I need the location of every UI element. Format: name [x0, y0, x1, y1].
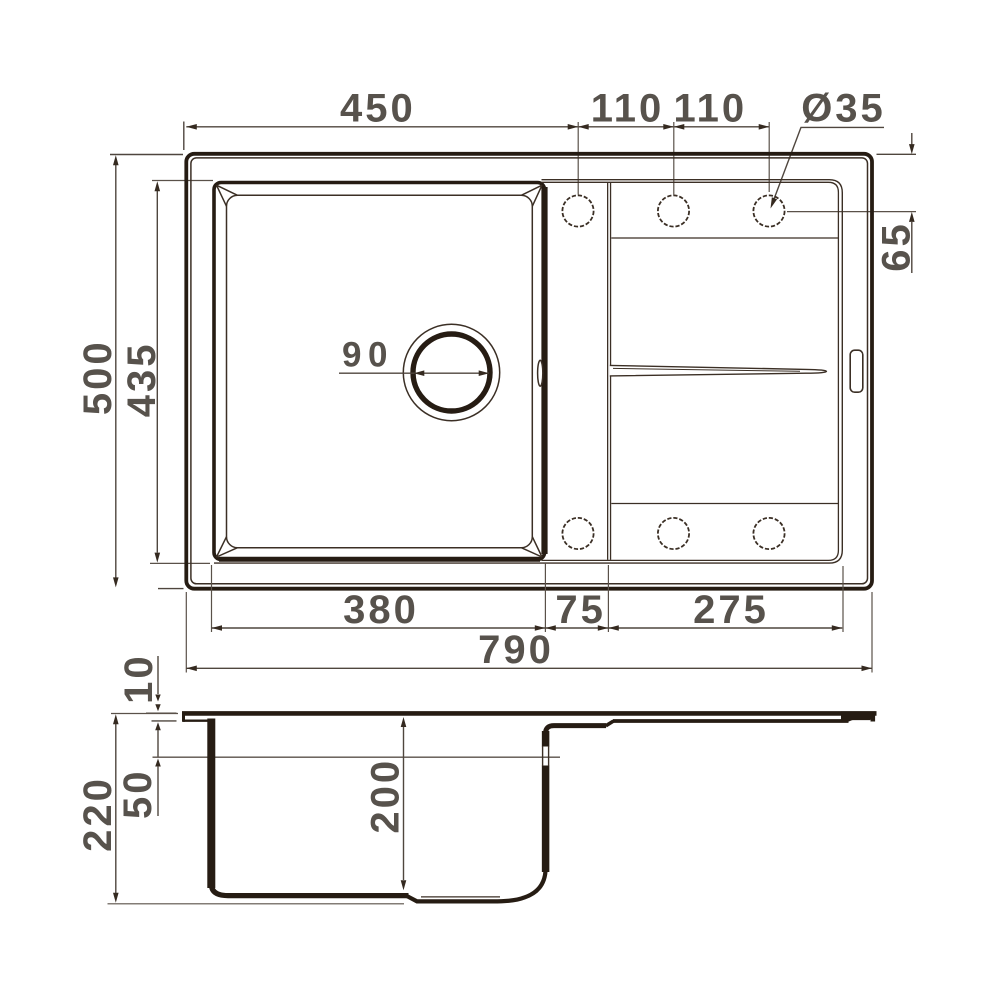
svg-text:65: 65	[875, 221, 919, 272]
svg-text:Ø35: Ø35	[801, 86, 886, 130]
svg-text:110: 110	[591, 86, 665, 130]
svg-text:435: 435	[120, 342, 164, 418]
svg-text:75: 75	[555, 588, 606, 632]
svg-text:790: 790	[478, 628, 554, 672]
svg-text:380: 380	[343, 588, 419, 632]
svg-text:200: 200	[363, 758, 407, 834]
svg-text:110: 110	[674, 86, 748, 130]
svg-text:220: 220	[76, 776, 120, 852]
svg-text:90: 90	[342, 336, 394, 375]
svg-text:500: 500	[76, 339, 120, 415]
svg-text:50: 50	[116, 768, 160, 819]
svg-text:275: 275	[693, 588, 769, 632]
svg-text:450: 450	[340, 86, 416, 130]
svg-text:10: 10	[117, 653, 161, 704]
